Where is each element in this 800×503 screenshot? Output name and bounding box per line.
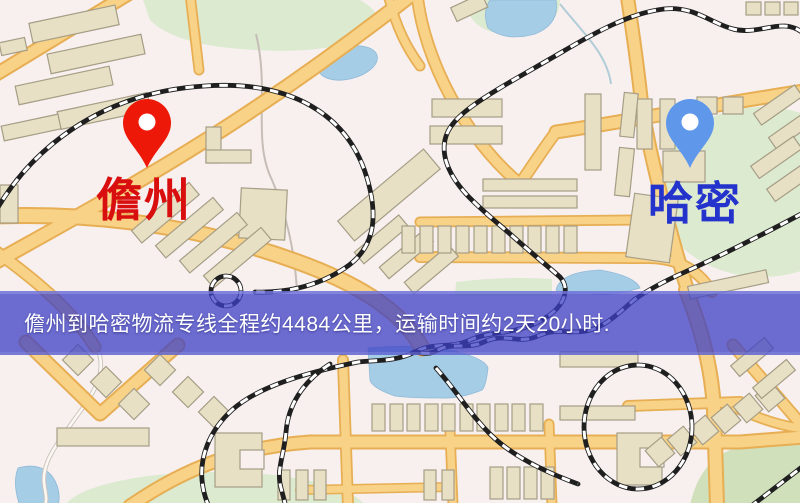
destination-label: 哈密 (620, 182, 770, 227)
route-info-text: 儋州到哈密物流专线全程约4484公里，运输时间约2天20小时. (0, 308, 610, 338)
map-canvas[interactable] (0, 0, 800, 503)
origin-label: 儋州 (70, 178, 218, 224)
map-screenshot: 儋州 哈密 儋州到哈密物流专线全程约4484公里，运输时间约2天20小时. (0, 0, 800, 503)
route-info-banner: 儋州到哈密物流专线全程约4484公里，运输时间约2天20小时. (0, 291, 800, 355)
